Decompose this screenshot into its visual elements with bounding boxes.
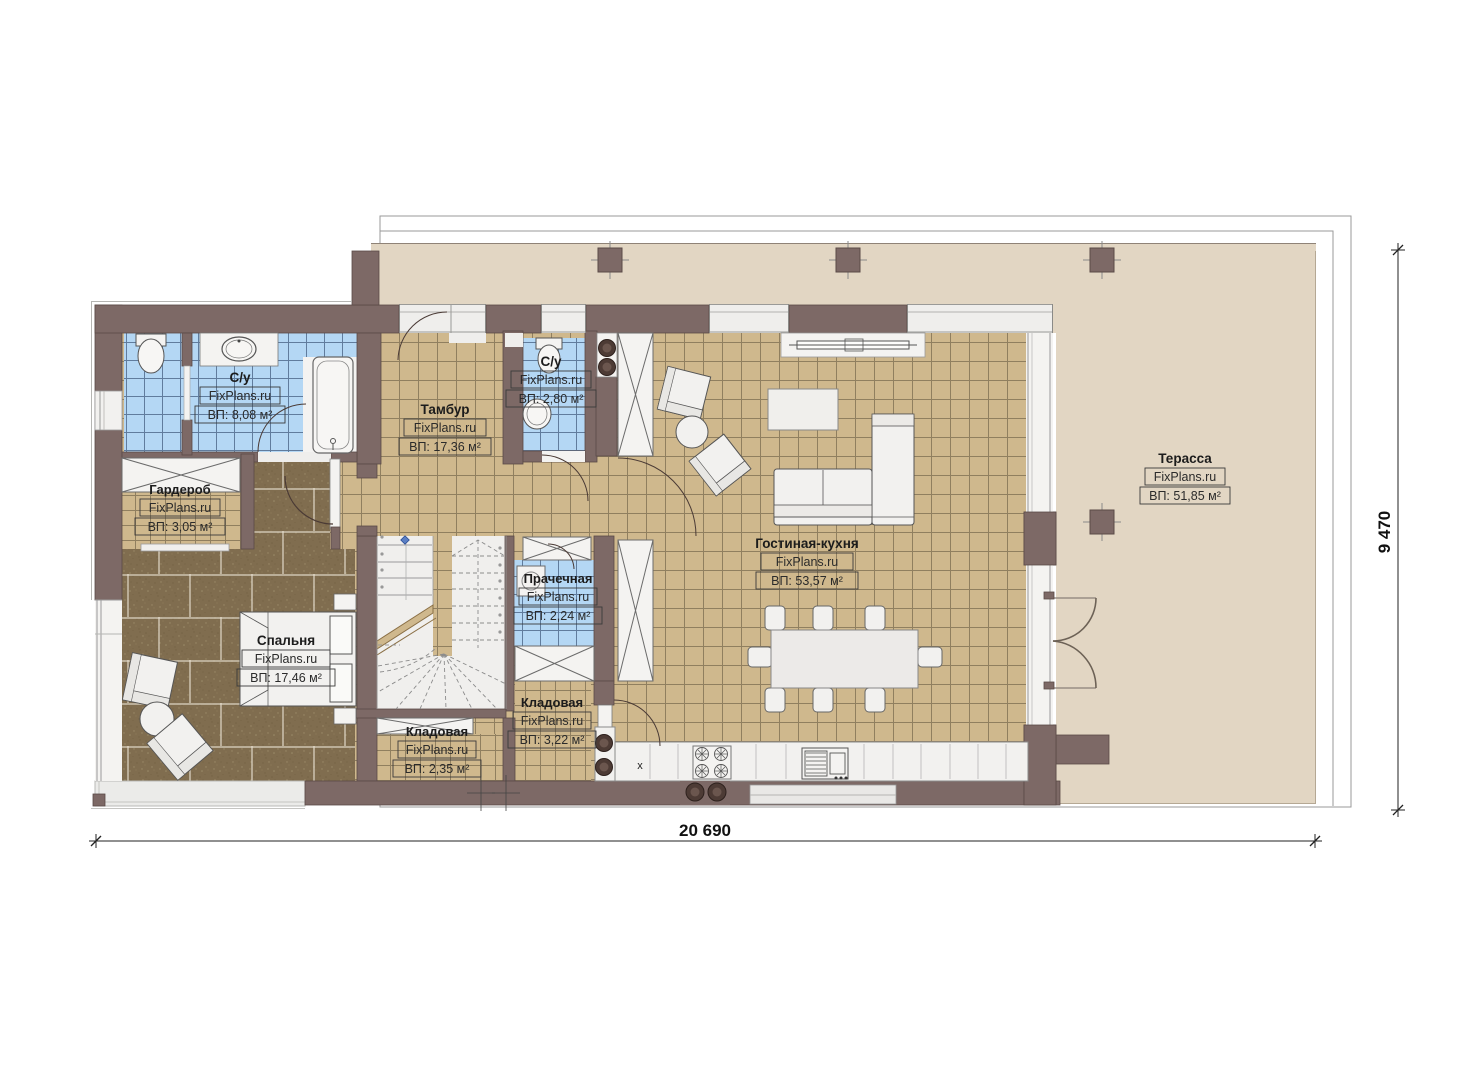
svg-text:ВП: 2,24 м²: ВП: 2,24 м²	[526, 609, 591, 623]
svg-text:ВП: 2,35 м²: ВП: 2,35 м²	[405, 762, 470, 776]
svg-text:FixPlans.ru: FixPlans.ru	[1154, 470, 1217, 484]
svg-text:ВП: 3,22 м²: ВП: 3,22 м²	[520, 733, 585, 747]
svg-text:ВП: 3,05 м²: ВП: 3,05 м²	[148, 520, 213, 534]
svg-text:FixPlans.ru: FixPlans.ru	[520, 373, 583, 387]
svg-text:ВП: 8,08 м²: ВП: 8,08 м²	[208, 408, 273, 422]
svg-text:Гардероб: Гардероб	[149, 482, 210, 497]
svg-text:Кладовая: Кладовая	[406, 724, 468, 739]
svg-text:ВП: 17,36 м²: ВП: 17,36 м²	[409, 440, 481, 454]
svg-text:FixPlans.ru: FixPlans.ru	[527, 590, 590, 604]
svg-text:Гостиная-кухня: Гостиная-кухня	[755, 536, 858, 551]
svg-text:ВП: 53,57 м²: ВП: 53,57 м²	[771, 574, 843, 588]
svg-text:FixPlans.ru: FixPlans.ru	[406, 743, 469, 757]
svg-text:Прачечная: Прачечная	[524, 571, 593, 586]
svg-text:Тамбур: Тамбур	[421, 402, 470, 417]
svg-text:Кладовая: Кладовая	[521, 695, 583, 710]
svg-text:С/у: С/у	[229, 370, 251, 385]
svg-text:FixPlans.ru: FixPlans.ru	[149, 501, 212, 515]
svg-text:20 690: 20 690	[679, 821, 731, 840]
svg-text:ВП: 17,46 м²: ВП: 17,46 м²	[250, 671, 322, 685]
svg-text:ВП: 2,80 м²: ВП: 2,80 м²	[519, 392, 584, 406]
svg-text:x: x	[637, 760, 643, 772]
svg-text:Терасса: Терасса	[1158, 451, 1212, 466]
svg-text:ВП: 51,85 м²: ВП: 51,85 м²	[1149, 489, 1221, 503]
svg-text:FixPlans.ru: FixPlans.ru	[255, 652, 318, 666]
svg-text:FixPlans.ru: FixPlans.ru	[414, 421, 477, 435]
svg-text:С/у: С/у	[540, 354, 562, 369]
svg-text:FixPlans.ru: FixPlans.ru	[776, 555, 839, 569]
svg-text:Спальня: Спальня	[257, 633, 315, 648]
svg-text:FixPlans.ru: FixPlans.ru	[521, 714, 584, 728]
svg-text:9 470: 9 470	[1375, 511, 1394, 554]
svg-text:FixPlans.ru: FixPlans.ru	[209, 389, 272, 403]
